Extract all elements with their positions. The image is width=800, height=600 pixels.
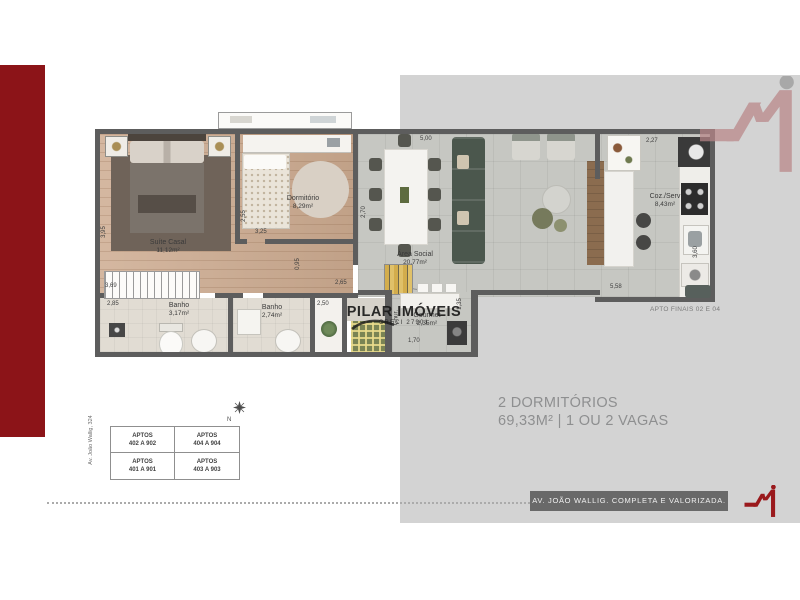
side-table-olive xyxy=(532,208,553,229)
unit-summary: 2 DORMITÓRIOS 69,33M² | 1 OU 2 VAGAS xyxy=(498,394,668,430)
street-label: Av. João Wallig, 324 xyxy=(88,405,94,475)
gourmet-chair-3 xyxy=(445,283,457,293)
dim-hall: 0,95 xyxy=(295,252,301,276)
wall-gourmet-right xyxy=(471,290,478,353)
nightstand-left xyxy=(105,136,128,157)
dim-gourmet-len: 1,70 xyxy=(408,338,420,344)
dim-living-depth: 2,70 xyxy=(361,200,367,224)
nook-fixture xyxy=(230,116,252,123)
gourmet-chair xyxy=(417,283,429,293)
suite-wardrobe xyxy=(104,271,200,299)
suite-headboard xyxy=(128,134,206,141)
dining-chair xyxy=(428,218,441,231)
label-suite: Suíte Casal11,12m² xyxy=(125,239,211,255)
stool-2 xyxy=(636,235,651,250)
wall-bath-divider xyxy=(228,298,233,352)
dining-chair xyxy=(398,134,411,147)
compass-north-label: N xyxy=(227,417,246,423)
wall-dorm-bottom-a xyxy=(235,239,247,244)
summary-line1: 2 DORMITÓRIOS xyxy=(498,394,668,412)
dim-closet: 2,50 xyxy=(317,301,329,307)
wall-top xyxy=(95,129,715,134)
wall-bedrooms-living xyxy=(353,129,358,265)
washer xyxy=(681,263,709,287)
wall-kitchen-stub xyxy=(595,134,600,179)
wall-dorm-bottom-b xyxy=(265,239,358,244)
dining-chair xyxy=(428,188,441,201)
suite-pillows xyxy=(130,141,204,163)
wall-left xyxy=(95,129,100,357)
banho2-sink xyxy=(275,329,301,353)
wall-living-bottom-b xyxy=(471,290,600,295)
units-table-cell: APTOS 403 A 903 xyxy=(175,453,239,479)
dim-kitchen-len: 5,58 xyxy=(610,284,622,290)
dim-dorm-depth: 2,55 xyxy=(241,204,247,228)
slide: Suíte Casal11,12m² Dormitório8,29m² Banh… xyxy=(0,0,800,600)
suite-throw xyxy=(138,195,196,213)
dim-kitchen-depth: 3,60 xyxy=(693,240,699,264)
label-banho1: Banho3,17m² xyxy=(151,302,207,318)
banho1-sink xyxy=(191,329,217,353)
north-arrow-icon xyxy=(233,401,246,414)
units-table: APTOS 402 A 902 APTOS 404 A 904 APTOS 40… xyxy=(110,426,240,480)
dining-chair xyxy=(369,188,382,201)
footer-banner: AV. JOÃO WALLIG. COMPLETA E VALORIZADA. xyxy=(530,491,728,511)
side-table-small xyxy=(554,219,567,232)
closet-plant xyxy=(321,321,337,337)
gourmet-chair-2 xyxy=(431,283,443,293)
nook-fixture-2 xyxy=(310,116,336,123)
dorm-desk-item xyxy=(327,138,340,147)
units-table-cell: APTOS 402 A 902 xyxy=(111,427,175,453)
units-table-cell: APTOS 401 A 901 xyxy=(111,453,175,479)
kitchen-shelf xyxy=(607,135,641,171)
dim-suite-depth: 3,95 xyxy=(101,220,107,244)
dim-banho1: 2,85 xyxy=(107,301,119,307)
brand-m-watermark-icon xyxy=(700,76,800,178)
label-coz-serv: Coz./Serv8,43m² xyxy=(631,193,699,209)
dining-chair xyxy=(369,158,382,171)
sofa-pillow xyxy=(457,155,469,169)
service-unit xyxy=(685,285,711,298)
dining-chair xyxy=(369,218,382,231)
brand-m-logo-icon xyxy=(744,485,779,519)
wall-living-bottom-a xyxy=(358,290,392,295)
red-accent-bar xyxy=(0,65,45,437)
dim-living-len: 5,00 xyxy=(420,136,432,142)
sofa-pillow-2 xyxy=(457,211,469,225)
dim-dorm-len: 3,25 xyxy=(255,229,267,235)
dotted-divider xyxy=(47,502,530,504)
kitchen-island xyxy=(604,171,634,267)
watermark-dot xyxy=(780,76,794,89)
dorm-pillow xyxy=(244,155,286,169)
wall-banho2-right xyxy=(310,298,315,352)
stool xyxy=(636,213,651,228)
watermark-swoosh-icon xyxy=(350,317,396,331)
dim-kitchen-top: 2,27 xyxy=(646,138,658,144)
shower-fixture xyxy=(109,323,125,337)
realtor-watermark: PILAR IMÓVEIS CRECI 27901 xyxy=(342,304,466,326)
dim-living-left: 2,65 xyxy=(335,280,347,286)
nightstand-right xyxy=(208,136,231,157)
armchair-2 xyxy=(547,133,575,160)
summary-line2: 69,33M² | 1 OU 2 VAGAS xyxy=(498,412,668,430)
wall-suite-dorm xyxy=(235,129,240,241)
wall-bottom xyxy=(95,352,478,357)
armchair xyxy=(512,133,540,160)
units-table-cell: APTOS 404 A 904 xyxy=(175,427,239,453)
label-dormitorio: Dormitório8,29m² xyxy=(263,195,343,211)
label-area-social: Área Social20,77m² xyxy=(383,251,447,267)
label-banho2: Banho2,74m² xyxy=(243,304,301,320)
table-centerpiece xyxy=(400,187,409,203)
compass: N xyxy=(224,401,246,423)
dim-suite-len: 3,69 xyxy=(105,283,117,289)
dining-chair xyxy=(428,158,441,171)
